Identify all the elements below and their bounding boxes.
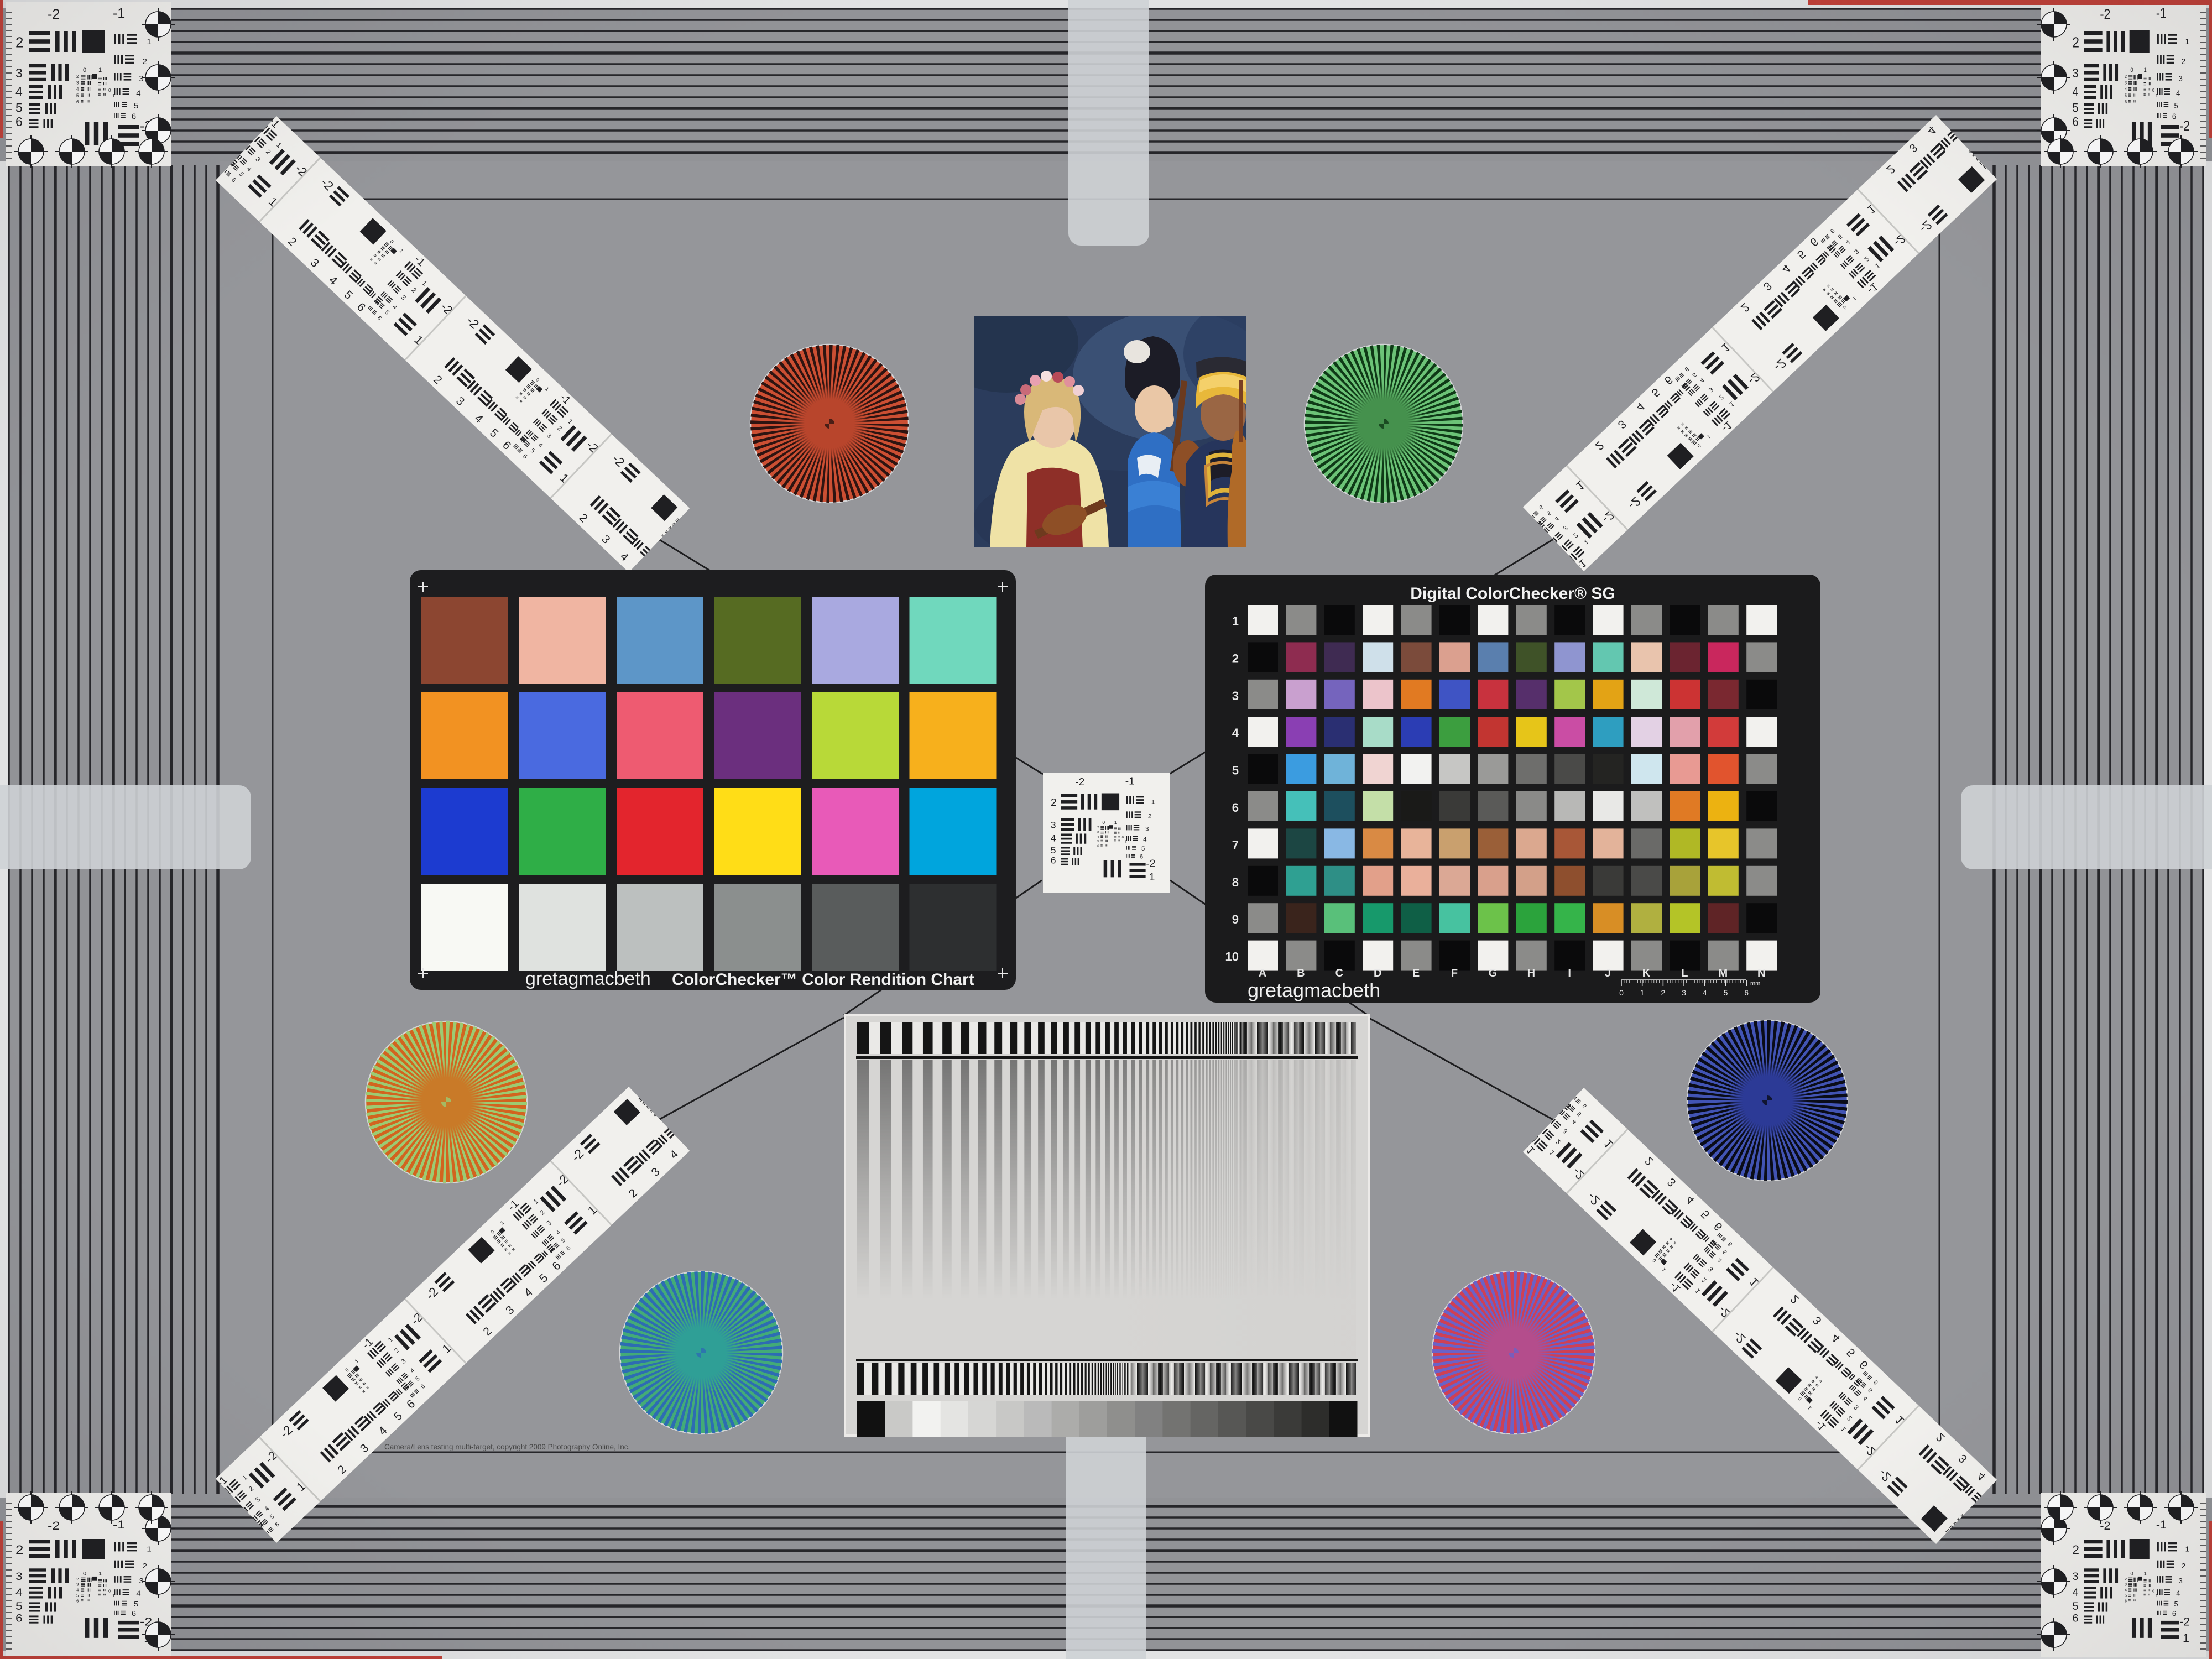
svg-text:Camera/Lens testing multi-targ: Camera/Lens testing multi-target, copyri…: [384, 1443, 630, 1451]
